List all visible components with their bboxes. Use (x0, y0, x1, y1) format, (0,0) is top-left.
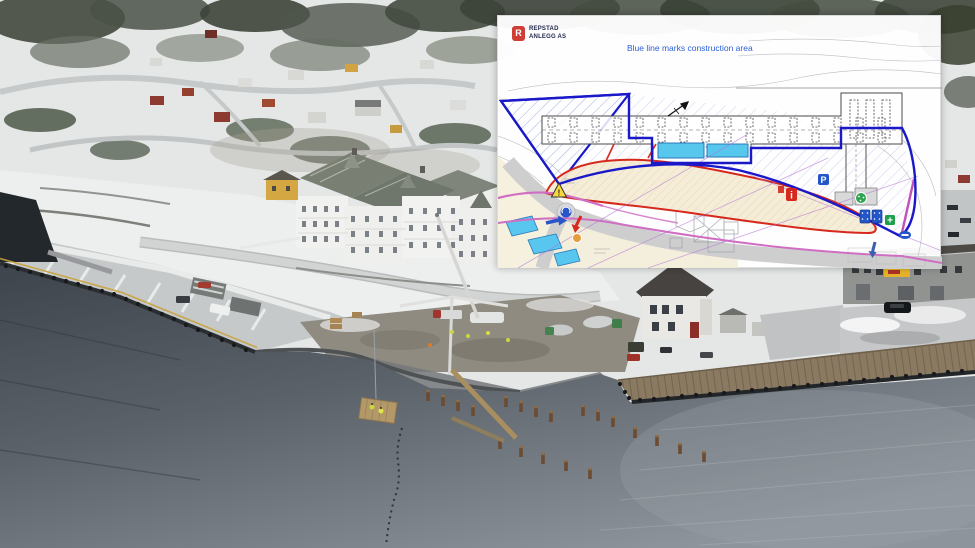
logo-mark-icon: R (512, 26, 525, 41)
recycling-icon (856, 193, 867, 204)
site-plan-drawing: ! P i (498, 16, 942, 269)
company-logo: R REPSTAD ANLEGG AS (512, 26, 566, 41)
construction-plan-overlay: R REPSTAD ANLEGG AS Blue line marks cons… (497, 15, 941, 268)
first-aid-icon: + (885, 215, 895, 227)
plan-title: Blue line marks construction area (627, 43, 753, 53)
red-pickup (198, 282, 211, 288)
road-sign-marker (899, 231, 911, 239)
company-name: REPSTAD ANLEGG AS (529, 26, 566, 40)
svg-text:i: i (790, 191, 793, 202)
orange-marker (573, 234, 582, 243)
water-feature-rect (658, 143, 704, 158)
svg-text:!: ! (558, 189, 561, 198)
svg-text:P: P (820, 175, 826, 185)
drone-photo-with-site-plan: R REPSTAD ANLEGG AS Blue line marks cons… (0, 0, 975, 548)
red-car (627, 354, 640, 361)
svg-text:+: + (887, 216, 893, 227)
parking-icon: P (818, 174, 829, 185)
dark-car (176, 296, 190, 303)
